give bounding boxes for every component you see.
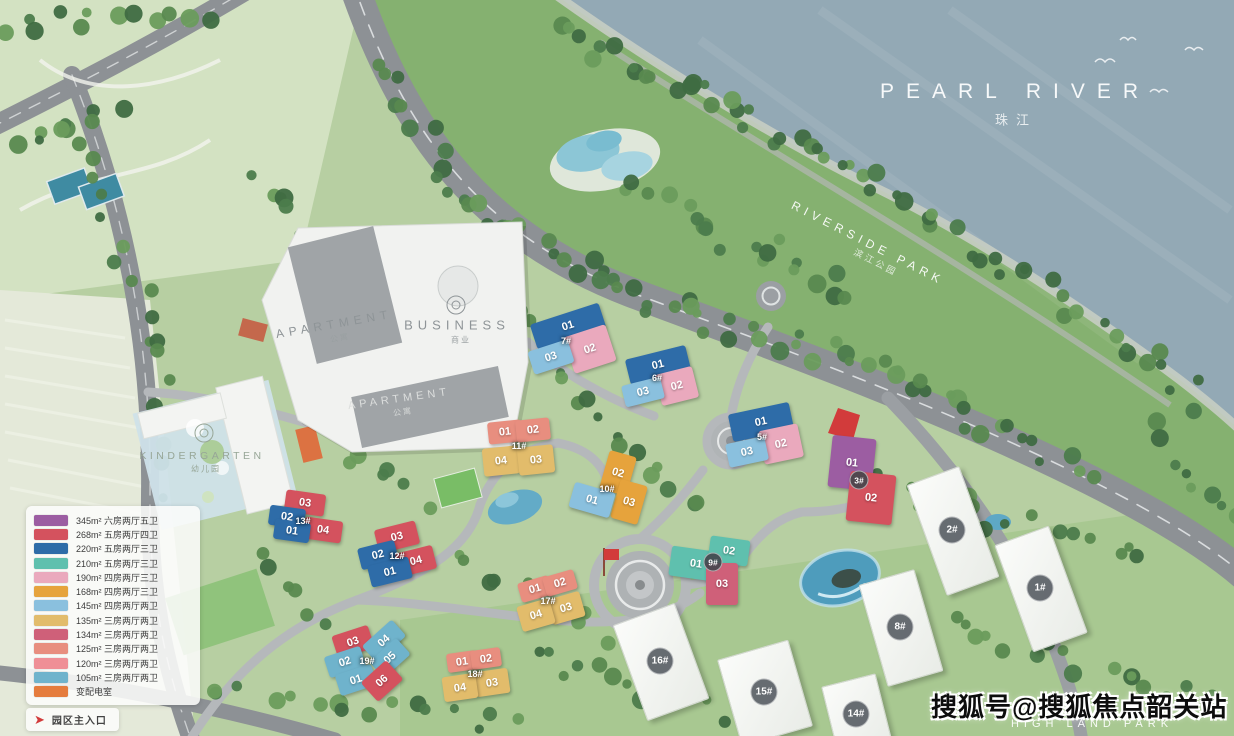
- legend-rows: 345m² 六房两厅五卫268m² 五房两厅四卫220m² 五房两厅三卫210m…: [34, 513, 192, 699]
- legend-item: 220m² 五房两厅三卫: [34, 542, 192, 556]
- pearl-river-label-zh: 珠江: [995, 110, 1037, 129]
- legend-swatch: [34, 515, 68, 526]
- site-plan-map: 1#2#8#14#15#16#0102037#0102036#0102035#0…: [0, 0, 1234, 736]
- legend-swatch: [34, 572, 68, 583]
- building-number: 10#: [599, 484, 614, 494]
- legend-item: 190m² 四房两厅三卫: [34, 570, 192, 584]
- building-number: 9#: [704, 553, 723, 572]
- legend-item: 135m² 三房两厅两卫: [34, 613, 192, 627]
- tower-number-badge: 2#: [939, 517, 966, 544]
- entrance-label-pill: ➤ 园区主入口: [26, 708, 119, 731]
- entrance-arrow-icon: ➤: [34, 713, 45, 726]
- building-number: 12#: [389, 551, 404, 561]
- legend-swatch: [34, 586, 68, 597]
- tower-number-badge: 15#: [751, 679, 778, 706]
- legend-text: 210m² 五房两厅三卫: [76, 557, 158, 570]
- kindergarten-label: KINDERGARTEN: [139, 450, 264, 462]
- legend-text: 125m² 三房两厅两卫: [76, 642, 158, 655]
- legend-text: 145m² 四房两厅两卫: [76, 599, 158, 612]
- legend-item: 变配电室: [34, 685, 192, 699]
- legend-swatch: [34, 686, 68, 697]
- legend-item: 268m² 五房两厅四卫: [34, 527, 192, 541]
- legend-item: 210m² 五房两厅三卫: [34, 556, 192, 570]
- business-label: BUSINESS: [404, 318, 510, 333]
- building-number: 19#: [359, 656, 374, 666]
- tower-number-badge: 8#: [887, 614, 914, 641]
- tower-number-badge: 16#: [647, 648, 674, 675]
- tower-number-badge: 1#: [1027, 575, 1054, 602]
- building-unit-chip: 02: [470, 647, 502, 670]
- business-logo-icon: [447, 296, 466, 315]
- building-number: 18#: [467, 669, 482, 679]
- entrance-label: 园区主入口: [52, 712, 107, 727]
- legend-item: 105m² 三房两厅两卫: [34, 670, 192, 684]
- building-number: 17#: [540, 596, 555, 606]
- legend-text: 220m² 五房两厅三卫: [76, 542, 158, 555]
- legend-item: 134m² 三房两厅两卫: [34, 627, 192, 641]
- legend-item: 345m² 六房两厅五卫: [34, 513, 192, 527]
- legend-item: 145m² 四房两厅两卫: [34, 599, 192, 613]
- legend-text: 105m² 三房两厅两卫: [76, 671, 158, 684]
- legend-text: 190m² 四房两厅三卫: [76, 571, 158, 584]
- building-number: 7#: [561, 336, 571, 346]
- legend-swatch: [34, 543, 68, 554]
- business-label-zh: 商业: [451, 335, 471, 346]
- legend-swatch: [34, 558, 68, 569]
- legend-swatch: [34, 600, 68, 611]
- tower-number-badge: 14#: [843, 701, 870, 728]
- legend-text: 135m² 三房两厅两卫: [76, 614, 158, 627]
- legend-item: 168m² 四房两厅三卫: [34, 584, 192, 598]
- legend-swatch: [34, 629, 68, 640]
- legend-swatch: [34, 643, 68, 654]
- legend-swatch: [34, 529, 68, 540]
- legend-text: 268m² 五房两厅四卫: [76, 528, 158, 541]
- legend-item: 120m² 三房两厅两卫: [34, 656, 192, 670]
- legend-panel: 345m² 六房两厅五卫268m² 五房两厅四卫220m² 五房两厅三卫210m…: [26, 506, 200, 705]
- pearl-river-label: PEARL RIVER: [880, 80, 1150, 104]
- kindergarten-logo-icon: [195, 424, 214, 443]
- building-number: 13#: [295, 516, 310, 526]
- building-number: 5#: [757, 432, 767, 442]
- legend-swatch: [34, 658, 68, 669]
- legend-swatch: [34, 672, 68, 683]
- legend-text: 120m² 三房两厅两卫: [76, 657, 158, 670]
- legend-item: 125m² 三房两厅两卫: [34, 642, 192, 656]
- watermark: 搜狐号@搜狐焦点韶关站: [931, 687, 1227, 724]
- building-unit-chip: 02: [515, 417, 551, 442]
- legend-text: 变配电室: [76, 685, 112, 698]
- legend-text: 134m² 三房两厅两卫: [76, 628, 158, 641]
- kindergarten-label-zh: 幼儿园: [191, 464, 221, 475]
- legend-swatch: [34, 615, 68, 626]
- building-number: 6#: [652, 373, 662, 383]
- building-number: 3#: [850, 471, 869, 490]
- building-number: 11#: [512, 441, 527, 451]
- legend-text: 345m² 六房两厅五卫: [76, 514, 158, 527]
- legend-text: 168m² 四房两厅三卫: [76, 585, 158, 598]
